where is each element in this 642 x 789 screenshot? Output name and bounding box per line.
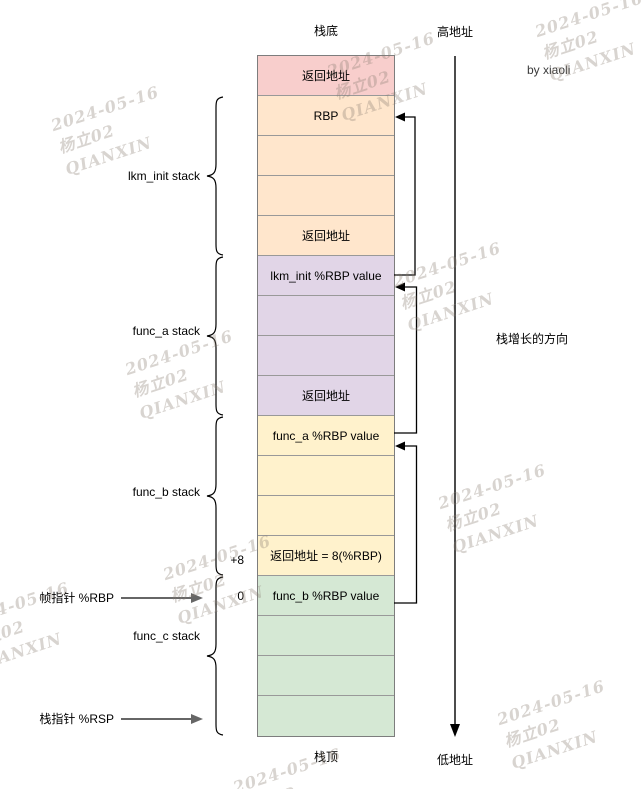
author-label: by xiaoli: [527, 63, 570, 77]
stack-cell: 返回地址: [258, 56, 394, 96]
stack-diagram: 栈底 高地址 by xiaoli 栈顶 低地址 栈增长的方向 返回地址 RBP …: [0, 0, 642, 789]
growth-direction-label: 栈增长的方向: [496, 332, 568, 346]
frame-label-func-c: func_c stack: [82, 629, 200, 643]
high-address-label: 高地址: [413, 25, 497, 39]
watermark-line: QIANXIN: [136, 368, 250, 425]
stack-cell: [258, 336, 394, 376]
stack-cell: RBP: [258, 96, 394, 136]
stack-cell: lkm_init %RBP value: [258, 256, 394, 296]
stack-cell: [258, 496, 394, 536]
stack-bottom-label: 栈底: [258, 24, 394, 38]
stack-cell: [258, 616, 394, 656]
watermark-line: QIANXIN: [546, 30, 642, 87]
watermark-line: 杨立02: [55, 102, 169, 159]
stack-cell: 返回地址: [258, 216, 394, 256]
rbp-link-lkm-init: [394, 113, 415, 276]
low-address-label: 低地址: [413, 753, 497, 767]
watermark-line: 2024-05-16: [532, 0, 642, 43]
watermark-line: 杨立02: [397, 258, 511, 315]
watermark-line: 2024-05-16: [390, 236, 504, 293]
frame-label-func-b: func_b stack: [82, 485, 200, 499]
watermark-line: QIANXIN: [508, 718, 622, 775]
rbp-link-func-b: [394, 442, 417, 604]
stack-cell: [258, 696, 394, 736]
stack-cell: func_b %RBP value: [258, 576, 394, 616]
watermark-line: QIANXIN: [404, 280, 518, 337]
watermark-line: 2024-05-16: [435, 458, 549, 515]
stack-cell: [258, 176, 394, 216]
brace-func-b-frame: [201, 416, 225, 577]
frame-pointer-arrow: [121, 593, 203, 603]
watermark-line: 杨立02: [237, 764, 351, 789]
watermark-line: 2024-05-16: [48, 80, 162, 137]
stack-cell: [258, 296, 394, 336]
frame-label-func-a: func_a stack: [82, 324, 200, 338]
frame-label-lkm-init: lkm_init stack: [82, 169, 200, 183]
brace-func-a-frame: [201, 256, 225, 417]
stack-cell: func_a %RBP value: [258, 416, 394, 456]
watermark-line: 杨立02: [501, 696, 615, 753]
brace-lkm-init-frame: [201, 96, 225, 257]
stack-pointer-arrow: [121, 714, 203, 724]
stack-top-label: 栈顶: [258, 750, 394, 764]
stack-cell: 返回地址 = 8(%RBP): [258, 536, 394, 576]
watermark-line: QIANXIN: [449, 502, 563, 559]
watermark-line: 2024-05-16: [494, 674, 608, 731]
watermark: 2024-05-16 杨立02 QIANXIN: [390, 236, 518, 336]
brace-func-c-frame: [201, 576, 225, 737]
watermark-line: 杨立02: [0, 598, 79, 655]
stack-pointer-label: 栈指针 %RSP: [18, 712, 114, 726]
frame-pointer-label: 帧指针 %RBP: [18, 591, 114, 605]
watermark: 2024-05-16 杨立02 QIANXIN: [48, 80, 176, 180]
watermark: 2024-05-16 杨立02 QIANXIN: [122, 324, 250, 424]
stack-column: 返回地址 RBP 返回地址 lkm_init %RBP value 返回地址 f…: [257, 55, 395, 737]
stack-cell: [258, 136, 394, 176]
watermark-line: QIANXIN: [0, 620, 86, 677]
stack-cell: [258, 456, 394, 496]
stack-cell: 返回地址: [258, 376, 394, 416]
rbp-link-func-a: [394, 283, 417, 434]
stack-cell: [258, 656, 394, 696]
watermark: 2024-05-16 杨立02 QIANXIN: [494, 674, 622, 774]
watermark: 2024-05-16 杨立02 QIANXIN: [435, 458, 563, 558]
watermark-line: 杨立02: [539, 8, 642, 65]
watermark-line: 杨立02: [442, 480, 556, 537]
watermark-line: 杨立02: [129, 346, 243, 403]
stack-growth-arrow: [450, 56, 460, 737]
